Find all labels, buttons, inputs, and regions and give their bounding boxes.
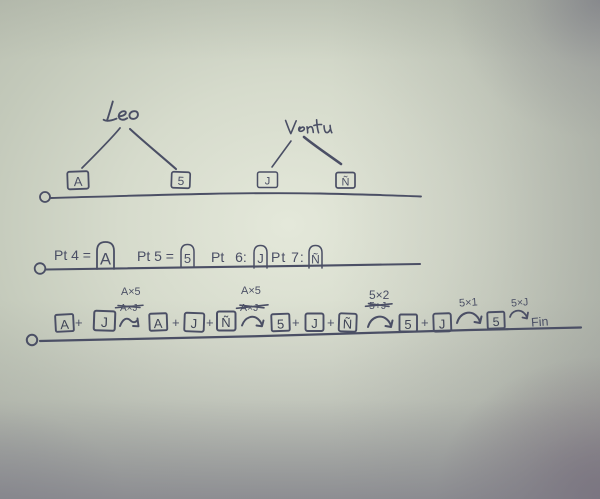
svg-text:5: 5 — [184, 251, 191, 266]
svg-text:J: J — [101, 314, 109, 330]
svg-text:Pt 7:: Pt 7: — [271, 249, 305, 265]
svg-text:+: + — [292, 315, 300, 330]
svg-text:5: 5 — [177, 174, 184, 188]
svg-text:Fin: Fin — [531, 314, 549, 329]
svg-text:Pt 5 =: Pt 5 = — [137, 248, 174, 264]
svg-text:A: A — [73, 174, 83, 189]
svg-text:Ñ: Ñ — [342, 176, 350, 189]
svg-text:Pt 6:: Pt 6: — [211, 249, 247, 265]
svg-text:J: J — [311, 316, 318, 331]
svg-text:+: + — [75, 315, 83, 330]
svg-text:5: 5 — [277, 316, 285, 331]
svg-text:5: 5 — [492, 315, 499, 329]
svg-text:J: J — [190, 316, 197, 331]
svg-text:A: A — [100, 251, 111, 269]
svg-text:A×5: A×5 — [241, 285, 261, 297]
svg-text:A: A — [153, 316, 163, 331]
svg-text:J: J — [257, 251, 264, 266]
svg-text:Ñ: Ñ — [221, 315, 230, 330]
svg-text:J: J — [439, 316, 446, 331]
svg-text:5×J: 5×J — [511, 296, 529, 309]
svg-text:Ñ: Ñ — [342, 316, 352, 331]
svg-text:+: + — [327, 315, 335, 330]
svg-text:+: + — [172, 315, 180, 330]
svg-text:A×5: A×5 — [121, 286, 141, 298]
svg-text:J: J — [265, 176, 271, 188]
svg-text:A: A — [60, 317, 70, 332]
svg-text:5×1: 5×1 — [459, 296, 478, 309]
svg-text:+: + — [206, 315, 214, 330]
svg-text:+: + — [421, 315, 429, 330]
svg-text:5: 5 — [404, 317, 411, 332]
svg-text:Pt 4 =: Pt 4 = — [54, 247, 91, 263]
svg-text:Ñ: Ñ — [311, 253, 320, 267]
svg-text:A×J: A×J — [120, 303, 138, 314]
